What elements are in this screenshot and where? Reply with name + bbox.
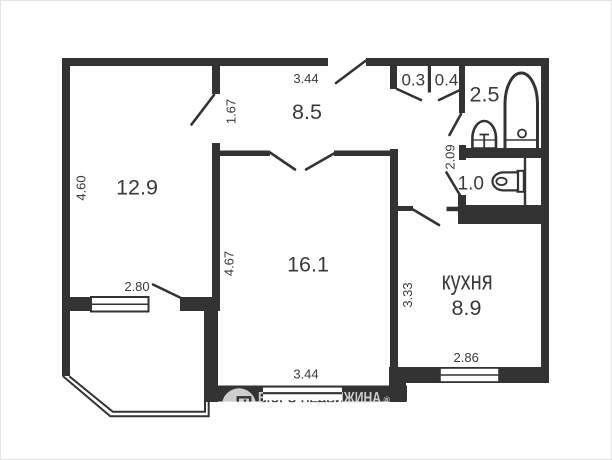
svg-text:2.5: 2.5 bbox=[470, 83, 500, 107]
svg-text:16.1: 16.1 bbox=[287, 253, 329, 277]
svg-text:1.67: 1.67 bbox=[224, 99, 239, 124]
svg-text:2.86: 2.86 bbox=[454, 350, 479, 365]
svg-text:кухня: кухня bbox=[442, 266, 493, 296]
svg-text:2.09: 2.09 bbox=[442, 144, 457, 169]
svg-text:0.4: 0.4 bbox=[435, 71, 459, 90]
svg-text:2.80: 2.80 bbox=[124, 279, 149, 294]
svg-text:0.3: 0.3 bbox=[401, 71, 425, 90]
svg-text:8.5: 8.5 bbox=[292, 100, 322, 124]
svg-text:4.67: 4.67 bbox=[222, 251, 237, 276]
svg-text:4.60: 4.60 bbox=[74, 175, 89, 200]
svg-text:3.44: 3.44 bbox=[293, 367, 318, 382]
svg-text:3.33: 3.33 bbox=[400, 282, 415, 307]
svg-text:3.44: 3.44 bbox=[293, 71, 318, 86]
svg-text:12.9: 12.9 bbox=[116, 176, 158, 200]
svg-text:1.0: 1.0 bbox=[458, 174, 484, 195]
svg-text:8.9: 8.9 bbox=[452, 296, 482, 320]
